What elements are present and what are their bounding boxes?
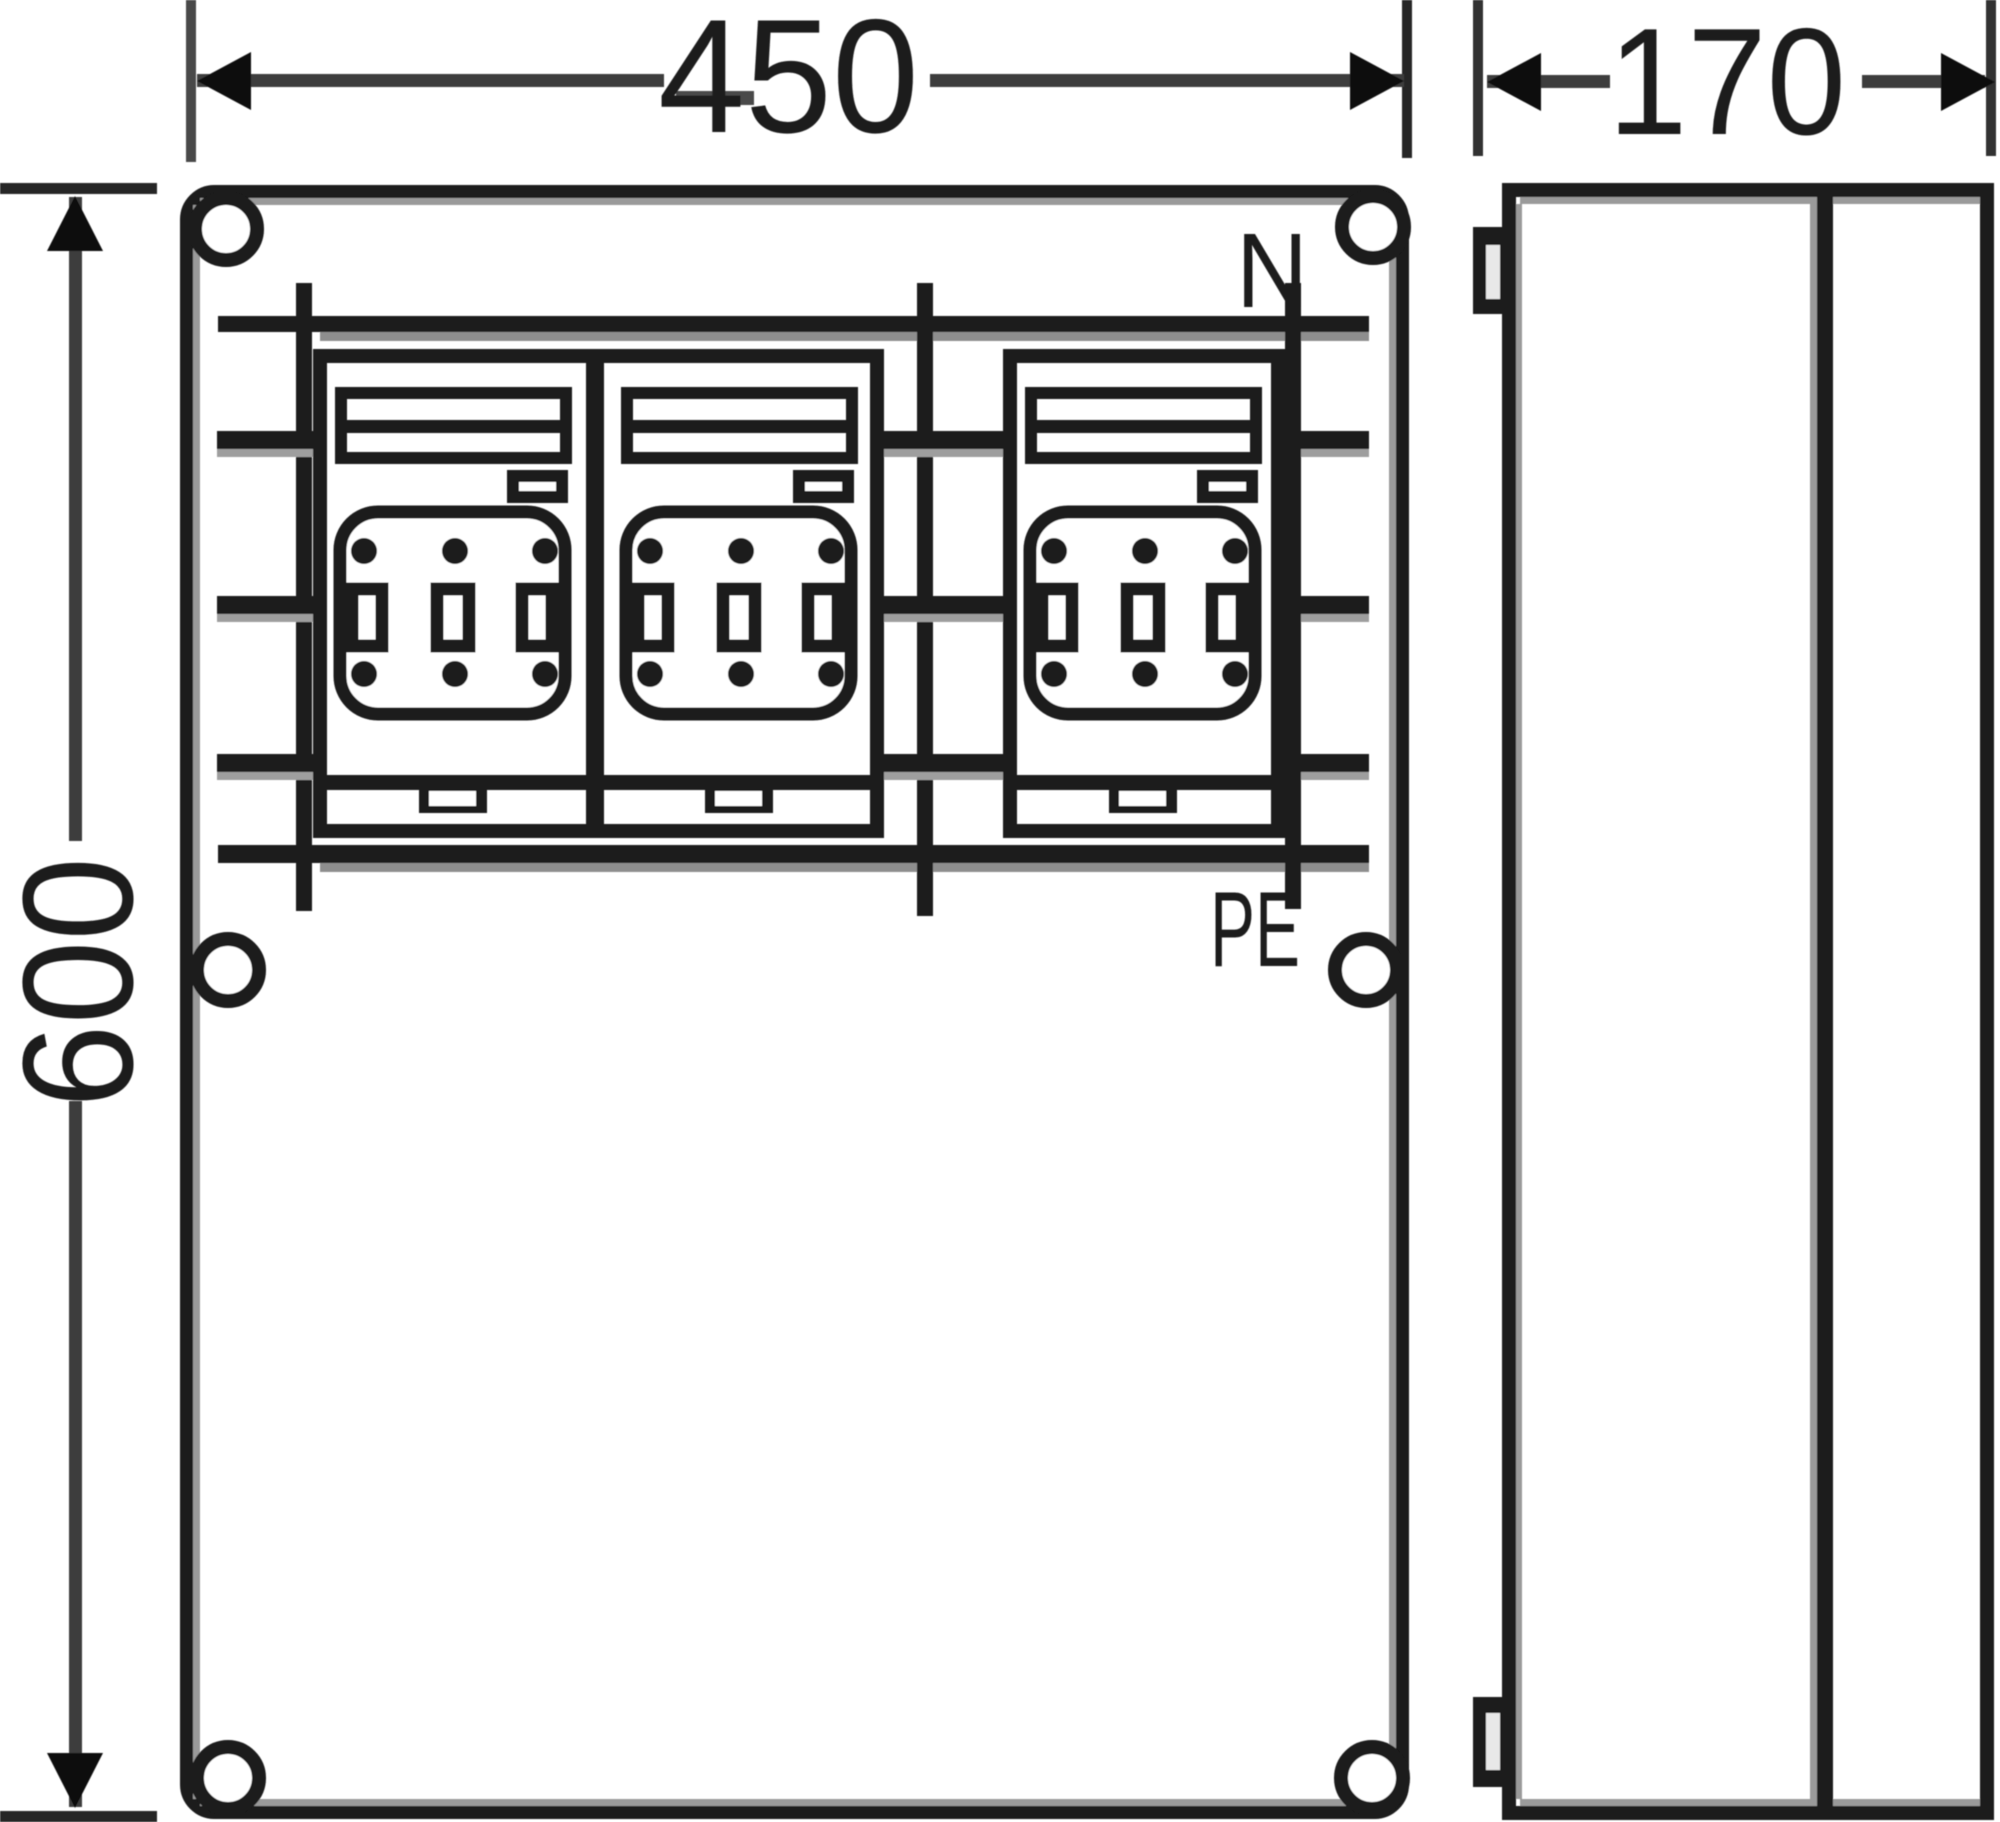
svg-text:N: N: [1236, 212, 1308, 330]
svg-text:PE: PE: [1210, 869, 1300, 989]
svg-text:450: 450: [658, 0, 919, 167]
svg-text:170: 170: [1608, 0, 1846, 167]
svg-text:600: 600: [0, 857, 166, 1108]
